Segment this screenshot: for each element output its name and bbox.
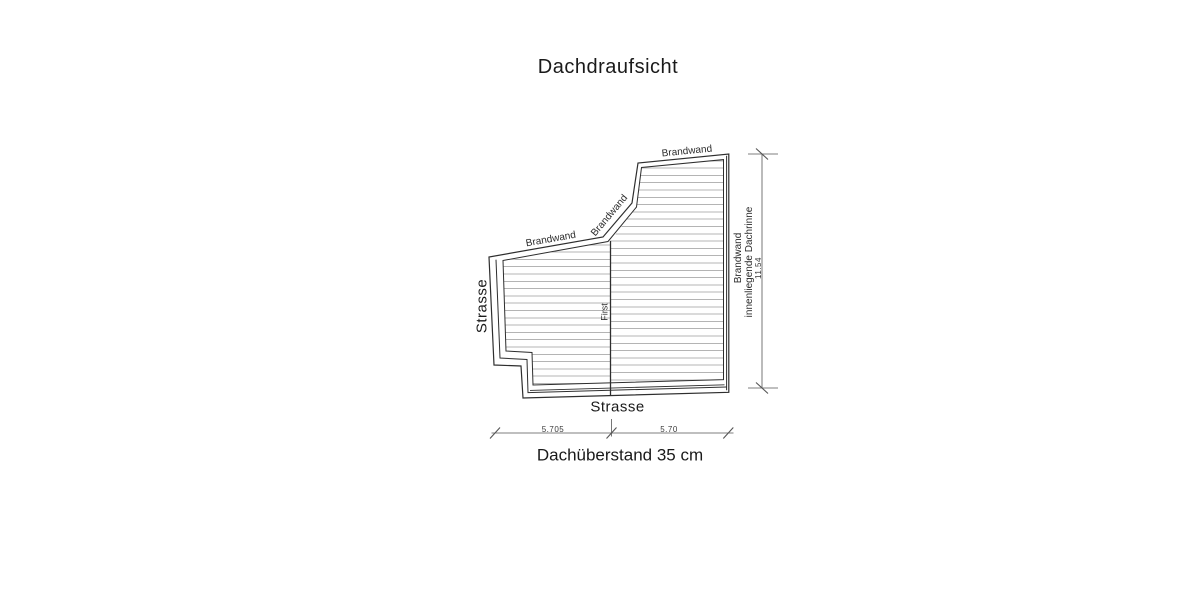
- inner-wall-line: [503, 160, 724, 385]
- roof-plan-page: Dachdraufsicht Brandwand Brandwand Brand…: [0, 0, 1200, 600]
- roof-plan-svg: [0, 0, 1200, 600]
- street-left-label: Strasse: [474, 279, 489, 333]
- page-title: Dachdraufsicht: [538, 57, 678, 77]
- dachrinne-right-label: innenliegende Dachrinne: [745, 207, 755, 318]
- width-left-dimension-value: 5.705: [542, 426, 565, 434]
- street-bottom-label: Strasse: [590, 399, 644, 414]
- brandwand-right-label: Brandwand: [734, 233, 744, 284]
- width-right-dimension-value: 5.70: [660, 426, 678, 434]
- gutter-line: [496, 260, 727, 393]
- ridge-label: First: [601, 303, 610, 321]
- height-dimension-value: 11.54: [755, 257, 763, 279]
- outer-roof-edge: [489, 154, 729, 398]
- overhang-note: Dachüberstand 35 cm: [537, 447, 703, 464]
